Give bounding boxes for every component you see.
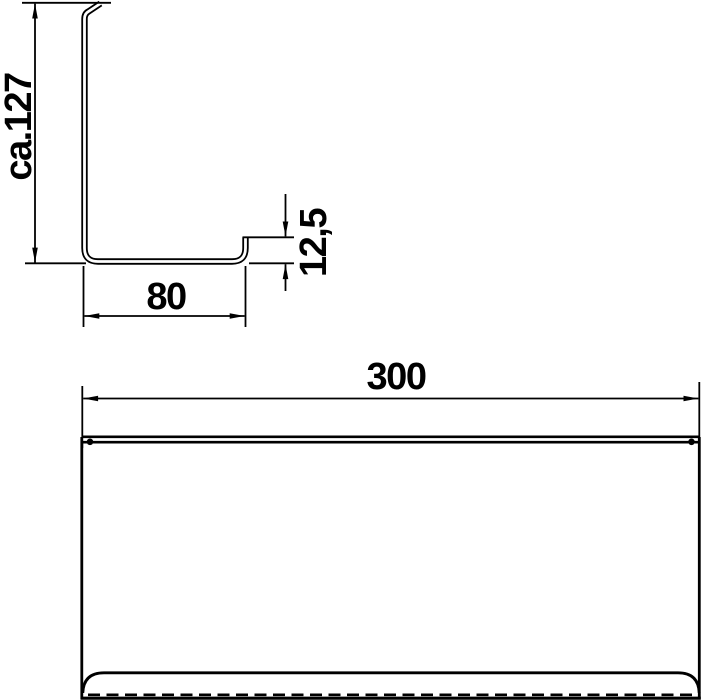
arrowhead-left [84,313,99,319]
dimension-width: 300 [82,356,699,448]
hook-end-dot-right [688,439,695,446]
technical-drawing: ca.127 80 12,5 [0,0,702,700]
arrowhead-left [83,396,98,402]
dimension-label-width: 300 [367,356,426,398]
arrowhead-up-to-bottom [283,264,289,279]
drawing-canvas: ca.127 80 12,5 [0,0,702,700]
hook-end-dot-left [87,439,94,446]
dimension-label-lip: 12,5 [293,208,335,277]
dimension-lip: 12,5 [243,194,336,291]
dimension-label-height: ca.127 [0,73,40,181]
dimension-label-depth: 80 [146,276,186,318]
arrowhead-up [32,4,38,19]
profile-sheet-core [85,4,246,262]
arrowhead-down-to-lip [283,222,289,237]
dimension-depth: 80 [84,266,246,327]
arrowhead-right [230,313,245,319]
profile-sheet-outline [85,4,246,262]
dimension-height: ca.127 [0,3,111,264]
arrowhead-right [684,396,699,402]
front-view: 300 [81,356,701,699]
profile-view: ca.127 80 12,5 [0,3,335,327]
arrowhead-down [32,248,38,263]
front-lip-fold-line [83,673,699,693]
